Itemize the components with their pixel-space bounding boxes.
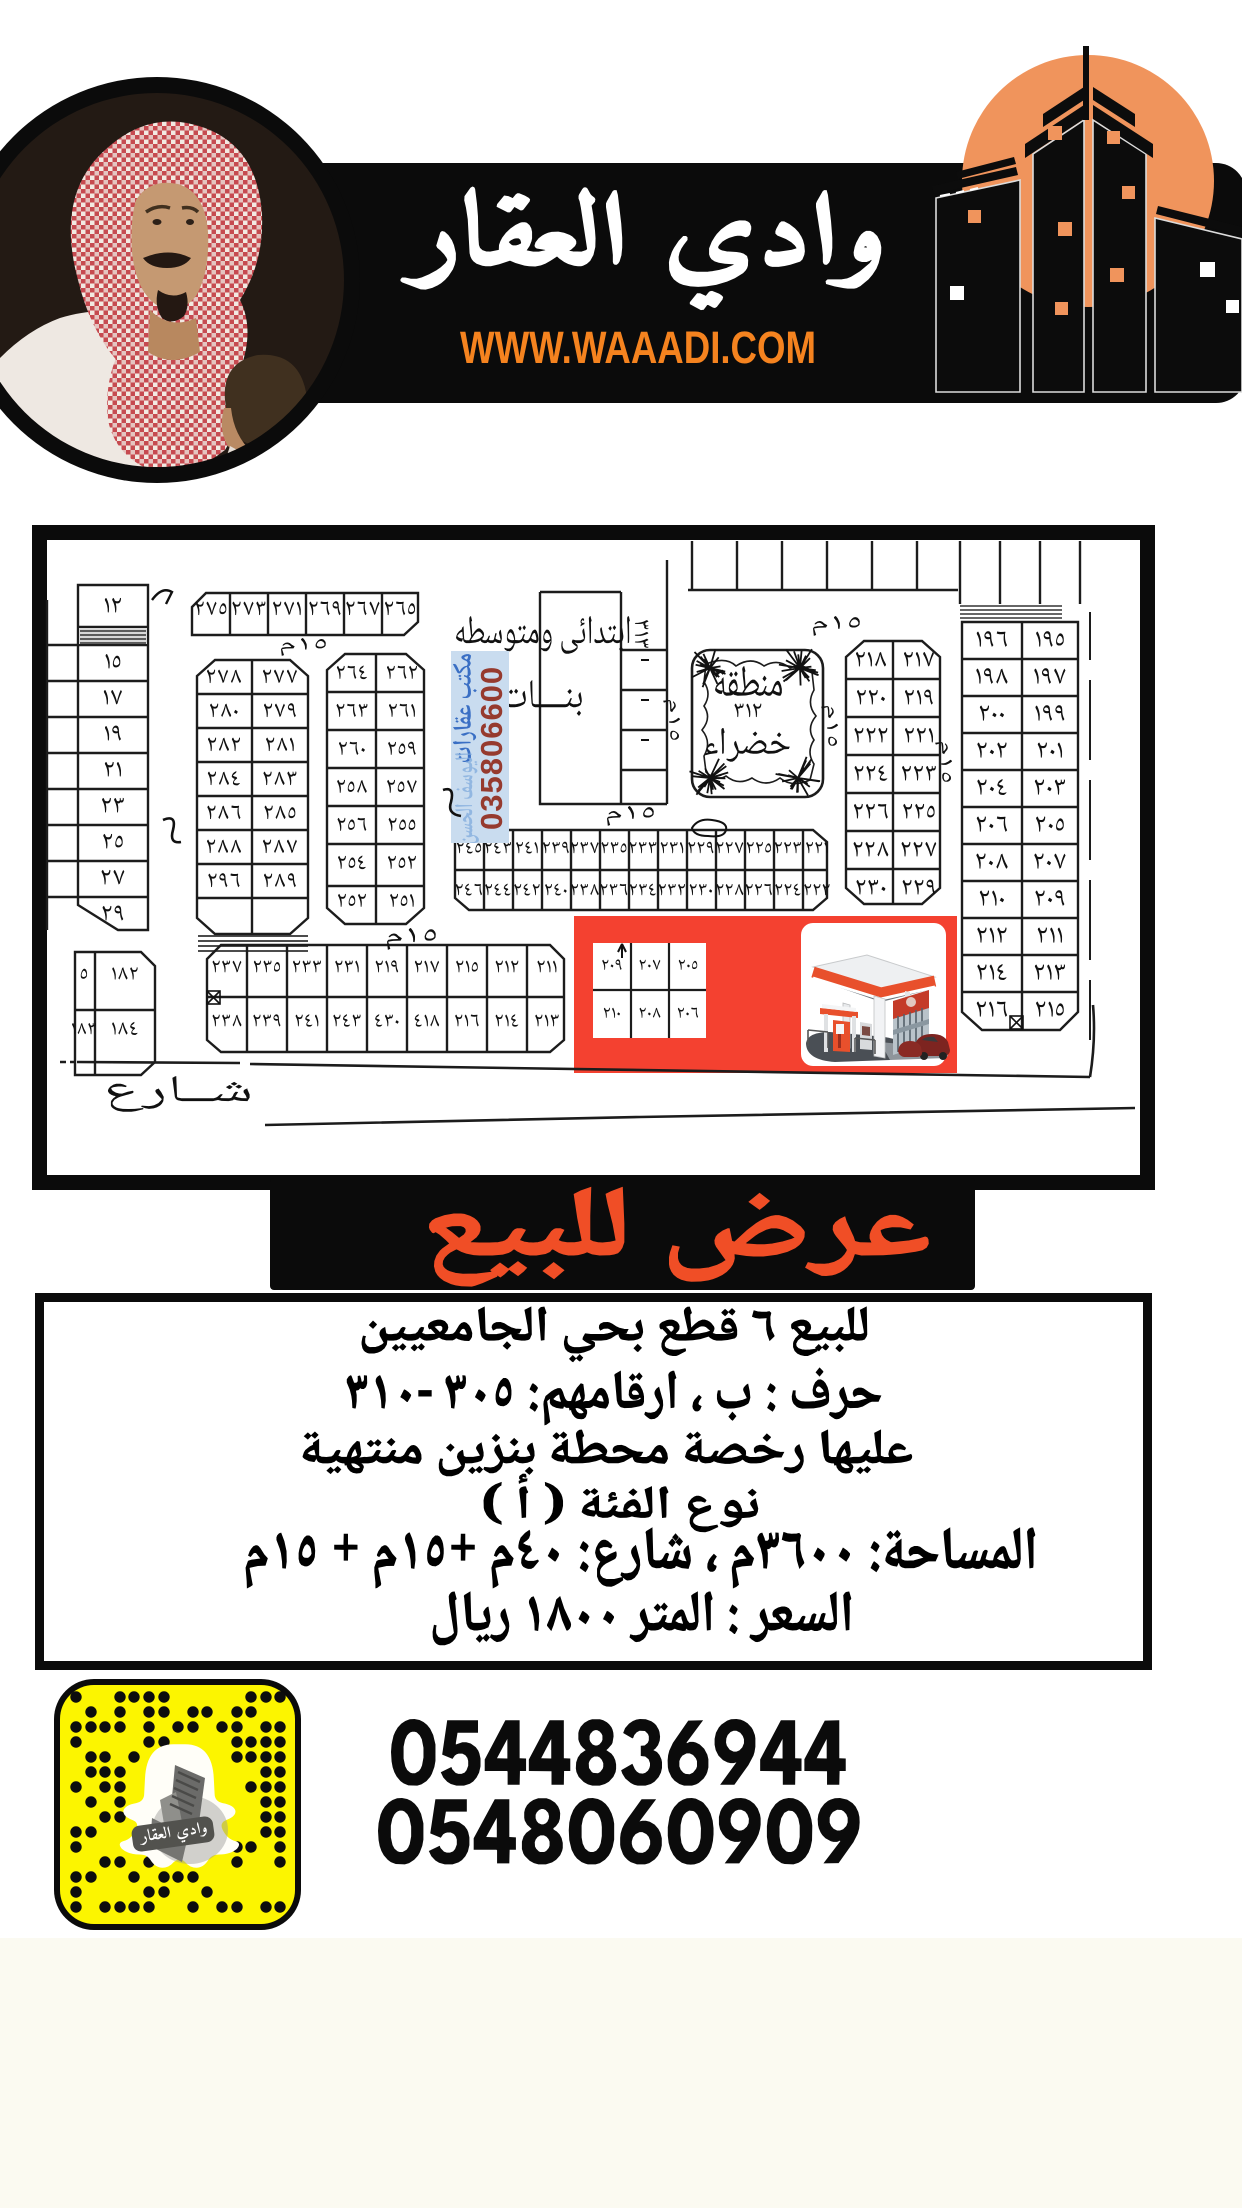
svg-text:035806600: 035806600 — [474, 666, 509, 830]
svg-text:WWW.WAAADI.COM: WWW.WAAADI.COM — [460, 322, 816, 373]
